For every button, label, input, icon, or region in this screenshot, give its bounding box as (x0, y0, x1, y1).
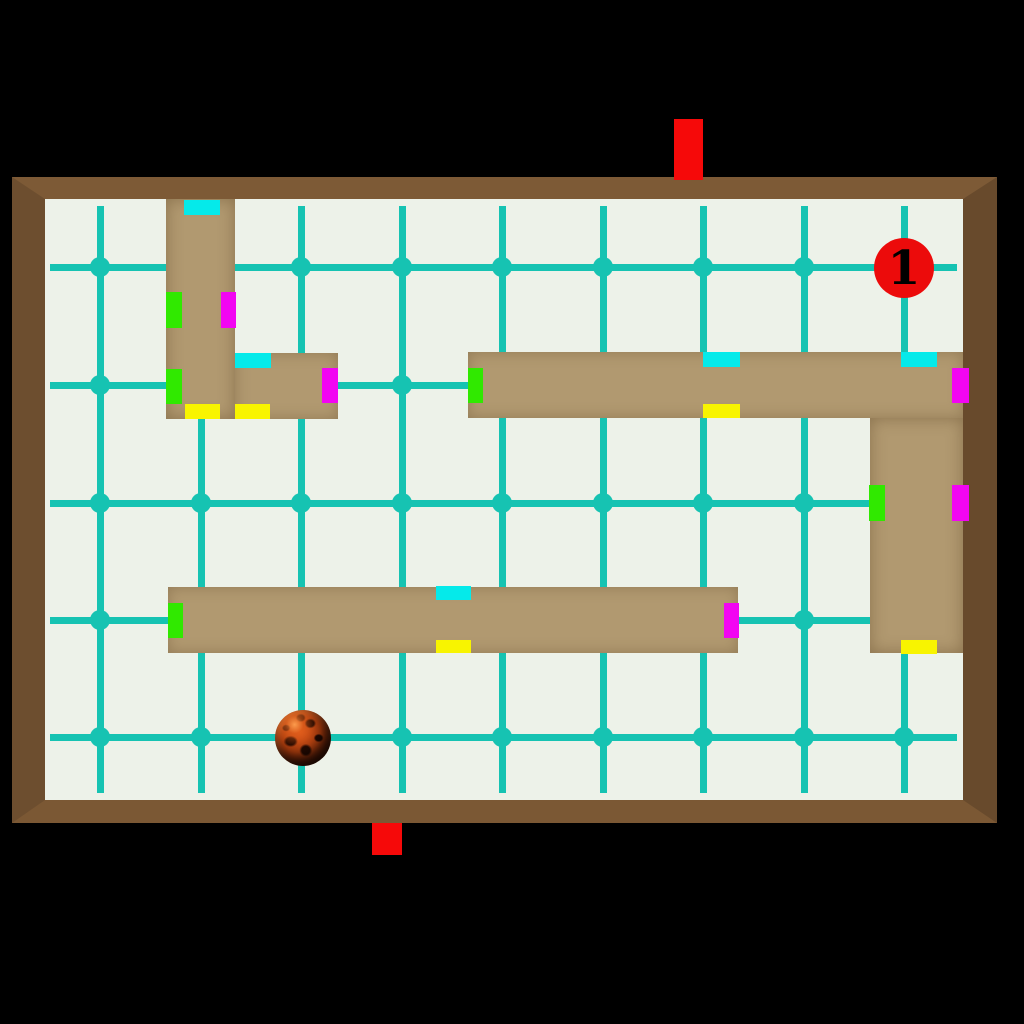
wall-marker-green (166, 292, 182, 328)
wall-marker-magenta (322, 368, 338, 403)
checkpoint-token: 1 (874, 238, 934, 298)
wall-marker-cyan (235, 353, 271, 368)
wall-marker-yellow (436, 640, 471, 653)
wall-marker-cyan (901, 352, 937, 367)
game-board: 1 (0, 0, 1024, 1024)
wall-marker-yellow (901, 640, 937, 654)
wall-marker-yellow (703, 404, 740, 418)
exit-marker-top (674, 119, 703, 180)
wall-marker-yellow (235, 404, 270, 419)
wall-marker-cyan (436, 586, 471, 600)
wall-marker-magenta (221, 292, 236, 328)
exit-marker-bottom (372, 823, 402, 855)
wall-marker-green (166, 369, 182, 404)
wall-marker-magenta (724, 603, 739, 638)
wall-marker-green (168, 603, 183, 638)
wall-marker-magenta (952, 485, 969, 521)
wood-frame (12, 177, 997, 823)
marble-ball[interactable] (275, 710, 331, 766)
wall-marker-cyan (184, 200, 220, 215)
wall-marker-green (869, 485, 885, 521)
wall-marker-cyan (703, 352, 740, 367)
wall-marker-yellow (185, 404, 220, 419)
wall-marker-magenta (952, 368, 969, 403)
wall-marker-green (468, 368, 483, 403)
maze-wall (870, 418, 963, 653)
